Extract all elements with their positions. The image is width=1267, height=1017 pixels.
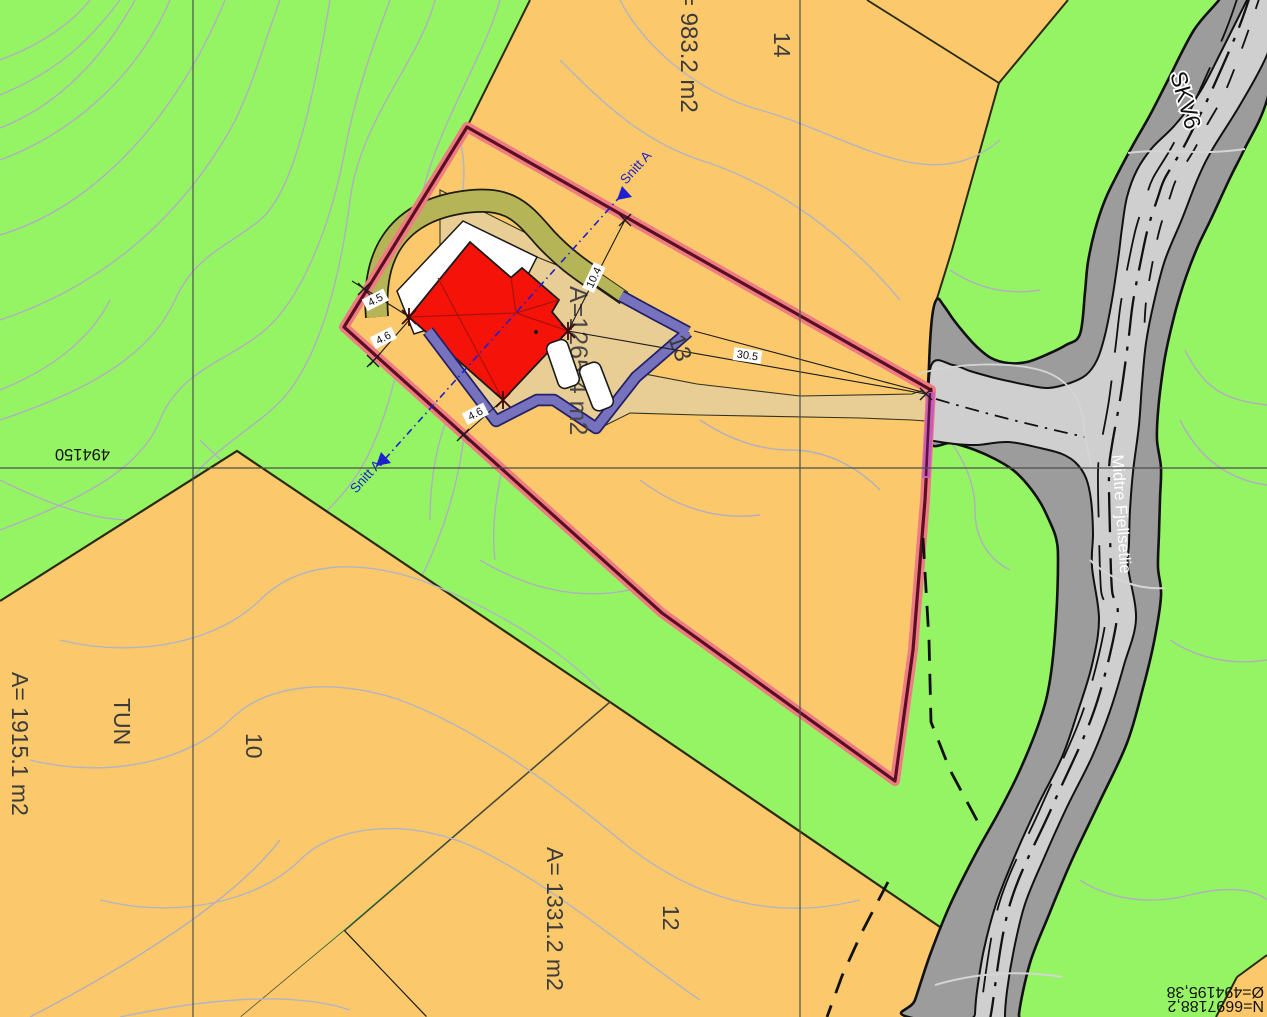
svg-text:A= 1331.2 m2: A= 1331.2 m2 bbox=[542, 847, 568, 991]
svg-text:N=6697188,2: N=6697188,2 bbox=[1167, 997, 1264, 1014]
svg-text:A= 1915.1 m2: A= 1915.1 m2 bbox=[7, 672, 33, 816]
svg-text:494150: 494150 bbox=[55, 445, 110, 463]
svg-text:= 983.2 m2: = 983.2 m2 bbox=[675, 0, 702, 113]
svg-text:14: 14 bbox=[769, 32, 795, 58]
svg-text:10: 10 bbox=[241, 733, 267, 759]
svg-text:12: 12 bbox=[658, 905, 684, 931]
svg-text:TUN: TUN bbox=[109, 698, 135, 745]
